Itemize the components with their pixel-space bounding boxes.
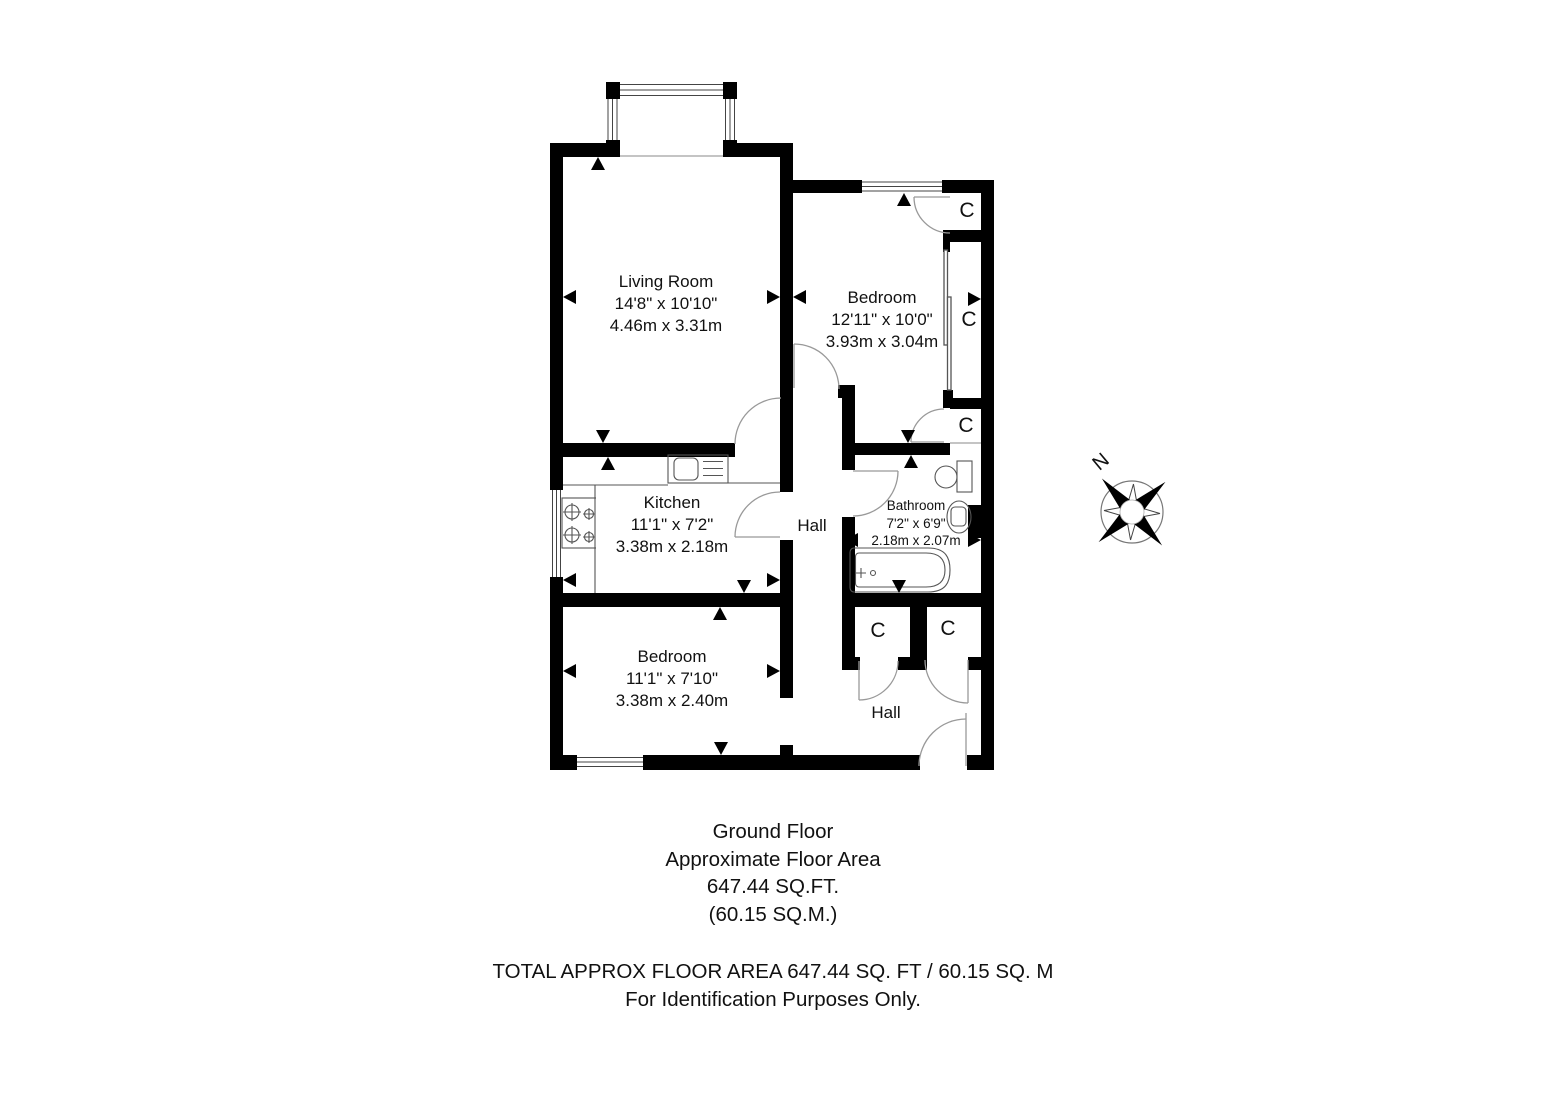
- wall-closet-long-bottom: [950, 398, 983, 409]
- dim-arrow-right: [968, 292, 981, 306]
- wall-bottom-outer: [967, 755, 994, 770]
- closet-top-right-door: [914, 197, 950, 233]
- kitchen-sink-basin: [674, 458, 698, 480]
- wall-closet-divider: [910, 607, 927, 657]
- wall-bathroom-bottom: [842, 593, 994, 607]
- kitchen-stove: [562, 498, 598, 548]
- room-dims-metric: 4.46m x 3.31m: [610, 315, 722, 337]
- wall-right-outer: [981, 180, 994, 770]
- floor-plan-page: Living Room 14'8" x 10'10" 4.46m x 3.31m…: [0, 0, 1550, 1096]
- bay-corner: [606, 140, 620, 157]
- dim-arrow-left: [563, 573, 576, 587]
- wall-bathroom-top: [842, 443, 950, 455]
- room-dims-imperial: 7'2" x 6'9": [871, 515, 960, 533]
- wall-bottom-outer: [550, 755, 577, 770]
- living-room-label: Living Room 14'8" x 10'10" 4.46m x 3.31m: [610, 271, 722, 337]
- wall-closet-tr-bottom: [943, 230, 994, 242]
- room-dims-metric: 3.38m x 2.40m: [616, 690, 728, 712]
- closet-label: C: [870, 619, 885, 643]
- dim-arrow-right: [767, 573, 780, 587]
- dim-arrow-left: [563, 664, 576, 678]
- total-area-block: TOTAL APPROX FLOOR AREA 647.44 SQ. FT / …: [493, 958, 1054, 1013]
- bedroom2-label: Bedroom 11'1" x 7'10" 3.38m x 2.40m: [616, 646, 728, 712]
- dim-arrow-down: [596, 430, 610, 443]
- closet-label: C: [959, 199, 974, 223]
- dim-arrow-right: [767, 664, 780, 678]
- kitchen-drainer: [703, 462, 723, 476]
- title-block: Ground Floor Approximate Floor Area 647.…: [665, 818, 880, 928]
- area-sqm: (60.15 SQ.M.): [665, 901, 880, 929]
- wall-spine-upper: [780, 143, 793, 492]
- bathtub-taps: [856, 568, 866, 578]
- area-label: Approximate Floor Area: [665, 846, 880, 874]
- compass-rose: [1068, 448, 1195, 575]
- wall-spine-mid: [780, 540, 793, 698]
- room-dims-imperial: 12'11" x 10'0": [826, 309, 938, 331]
- floor-name: Ground Floor: [665, 818, 880, 846]
- dim-arrow-right: [767, 290, 780, 304]
- wall-closets-bottom: [842, 657, 860, 670]
- bathroom-label: Bathroom 7'2" x 6'9" 2.18m x 2.07m: [871, 497, 960, 550]
- dim-arrow-up: [897, 193, 911, 206]
- bay-corner: [723, 82, 737, 99]
- room-dims-metric: 2.18m x 2.07m: [871, 532, 960, 550]
- wall-bottom-outer: [643, 755, 920, 770]
- room-dims-metric: 3.38m x 2.18m: [616, 536, 728, 558]
- room-name: Bedroom: [616, 646, 728, 668]
- dim-arrow-left: [563, 290, 576, 304]
- total-area-line: TOTAL APPROX FLOOR AREA 647.44 SQ. FT / …: [493, 958, 1054, 986]
- floor-plan-drawing: [0, 0, 1550, 1096]
- room-name: Kitchen: [616, 492, 728, 514]
- bay-window: [606, 82, 737, 156]
- doors: [735, 197, 968, 766]
- wall-closets-bottom: [968, 657, 994, 670]
- closet-small-door: [911, 409, 944, 442]
- hall-center-label: Hall: [797, 516, 826, 536]
- closet-label: C: [958, 414, 973, 438]
- kitchen-window: [550, 490, 563, 577]
- bedroom2-window: [577, 755, 643, 770]
- dim-arrow-up: [591, 157, 605, 170]
- wall-bath-left-upper: [842, 388, 855, 470]
- room-dims-imperial: 14'8" x 10'10": [610, 293, 722, 315]
- wall-top-left: [550, 143, 607, 157]
- closet-lower-left-door: [859, 661, 898, 700]
- kitchen-label: Kitchen 11'1" x 7'2" 3.38m x 2.18m: [616, 492, 728, 558]
- closet-label: C: [940, 617, 955, 641]
- room-name: Bedroom: [826, 287, 938, 309]
- bedroom1-label: Bedroom 12'11" x 10'0" 3.93m x 3.04m: [826, 287, 938, 353]
- room-name: Bathroom: [871, 497, 960, 515]
- room-name: Living Room: [610, 271, 722, 293]
- entry-door: [919, 713, 966, 766]
- wall-bedroom-top-left: [782, 180, 862, 193]
- dim-arrow-down: [737, 580, 751, 593]
- disclaimer-line: For Identification Purposes Only.: [493, 986, 1054, 1014]
- windows: [550, 82, 942, 770]
- area-sqft: 647.44 SQ.FT.: [665, 873, 880, 901]
- bay-corner: [606, 82, 620, 99]
- closet-sliding-door: [944, 250, 951, 390]
- dim-arrow-up: [713, 607, 727, 620]
- dim-arrow-left: [793, 290, 806, 304]
- bay-corner: [723, 140, 737, 157]
- closet-label: C: [961, 308, 976, 332]
- dim-arrow-down: [714, 742, 728, 755]
- closet-lower-right-door: [925, 660, 968, 703]
- wall-kitchen-bottom: [550, 593, 793, 607]
- hall-lower-label: Hall: [871, 703, 900, 723]
- room-dims-imperial: 11'1" x 7'10": [616, 668, 728, 690]
- bedroom-window: [862, 180, 942, 193]
- bathroom-toilet: [935, 461, 972, 492]
- dim-arrow-up: [904, 455, 918, 468]
- living-room-door-arc: [735, 398, 781, 444]
- wall-closets-bottom: [898, 657, 927, 670]
- dim-arrow-up: [601, 457, 615, 470]
- dim-arrow-down: [901, 430, 915, 443]
- room-dims-metric: 3.93m x 3.04m: [826, 331, 938, 353]
- room-dims-imperial: 11'1" x 7'2": [616, 514, 728, 536]
